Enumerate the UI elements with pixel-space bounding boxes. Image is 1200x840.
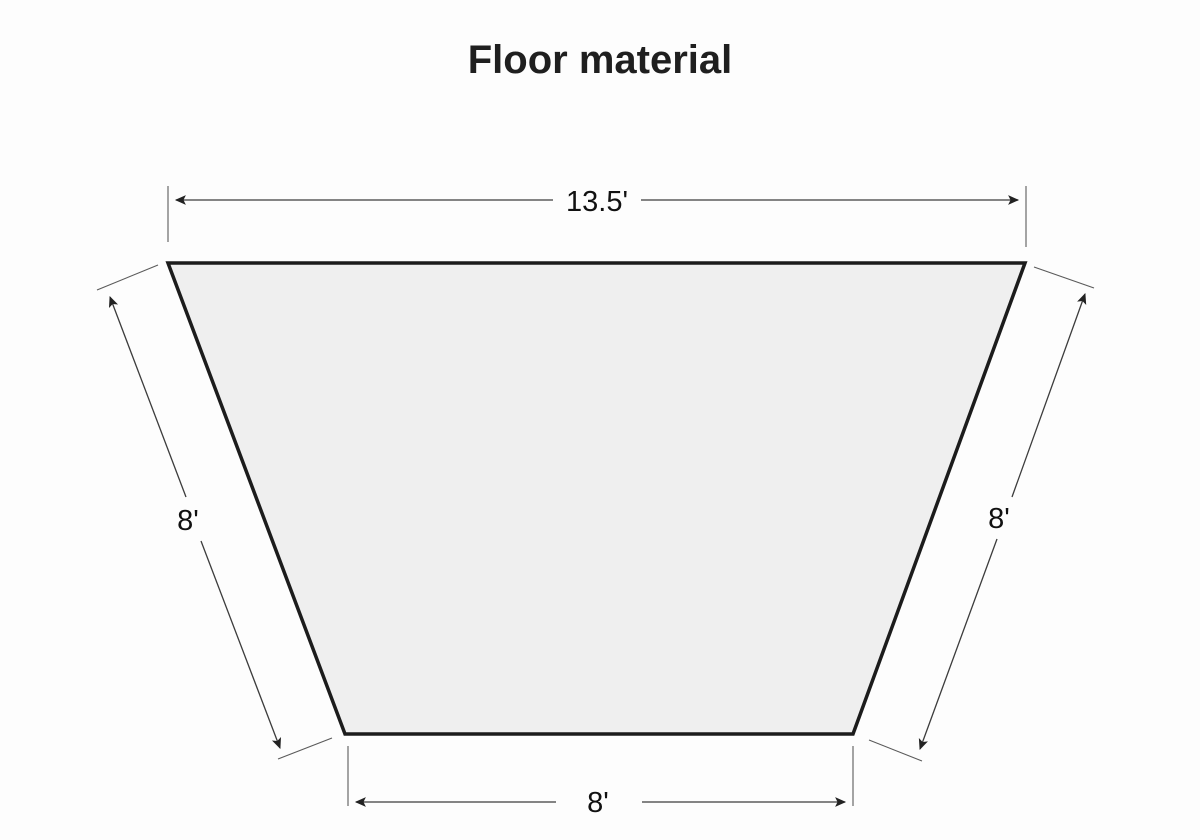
extension-line-right-top (1034, 267, 1094, 288)
extension-line-left-bottom (278, 738, 332, 759)
extension-line-right-bottom (869, 740, 922, 761)
dimension-line-left-upper-segment (110, 297, 186, 497)
dimension-line-left-lower-segment (201, 541, 280, 748)
dimension-line-right-upper-segment (1012, 294, 1085, 497)
floor-outline-trapezoid (168, 263, 1025, 734)
dimension-line-right-lower-segment (920, 539, 997, 749)
floor-material-diagram: Floor material 13.5' 8' 8' (0, 0, 1200, 840)
dimension-bottom: 8' (348, 746, 853, 819)
dimension-label-top: 13.5' (566, 186, 628, 218)
floor-material-page: Floor material 13.5' 8' 8' (0, 0, 1200, 840)
dimension-top: 13.5' (168, 186, 1026, 247)
extension-line-left-top (97, 265, 158, 290)
page-title: Floor material (468, 38, 733, 82)
dimension-label-left: 8' (177, 505, 199, 537)
dimension-label-right: 8' (988, 503, 1010, 535)
dimension-label-bottom: 8' (587, 787, 609, 819)
